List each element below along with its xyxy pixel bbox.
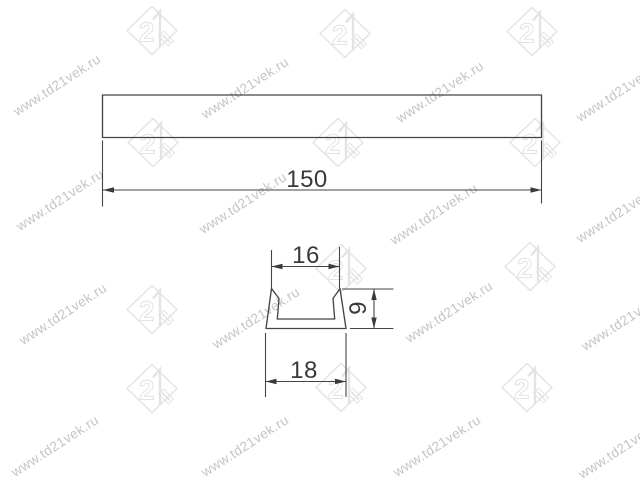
- dimension-label-top-width: 16: [292, 242, 320, 269]
- dimension-label-length: 150: [286, 166, 328, 193]
- dimension-18: 18: [266, 333, 347, 397]
- dimension-label-bottom-width: 18: [290, 357, 318, 384]
- front-view: 150: [103, 95, 542, 207]
- arrowhead-bottom: [371, 318, 376, 329]
- technical-drawing-canvas: www.td21vek.ruwww.td21vek.ruwww.td21vek.…: [0, 0, 640, 480]
- arrowhead-left: [266, 379, 277, 384]
- arrowhead-right: [329, 264, 340, 269]
- dimension-150: 150: [103, 141, 542, 207]
- profile-section-outline: [266, 289, 346, 329]
- drawing-svg: 150 16 18: [0, 0, 640, 480]
- arrowhead-top: [371, 289, 376, 300]
- arrowhead-right: [335, 379, 346, 384]
- profile-bar-outline: [103, 95, 542, 138]
- arrowhead-left: [272, 264, 283, 269]
- arrowhead-right: [531, 187, 542, 192]
- arrowhead-left: [103, 187, 114, 192]
- dimension-9: 9: [342, 289, 394, 329]
- section-view: 16 18 9: [266, 242, 394, 397]
- dimension-16: 16: [272, 242, 340, 291]
- dimension-label-height: 9: [345, 301, 372, 315]
